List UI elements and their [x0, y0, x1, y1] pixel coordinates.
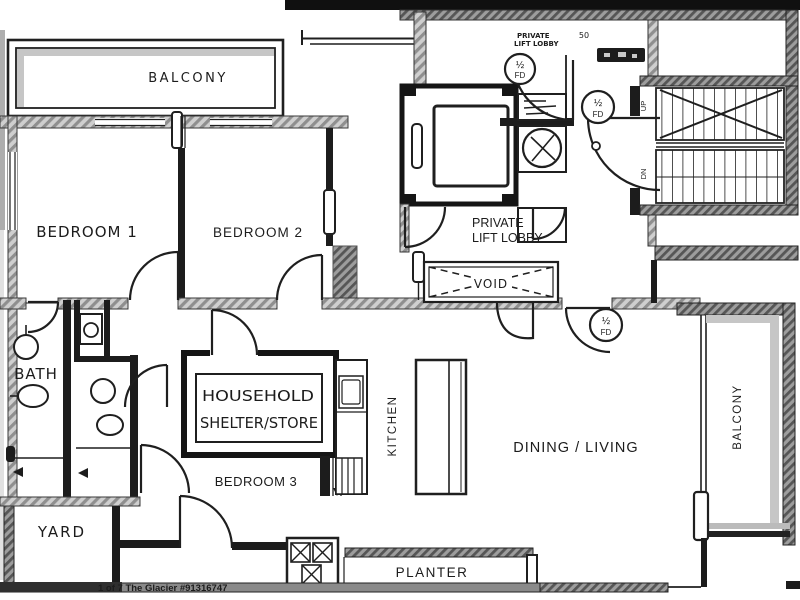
toilet-fixture	[97, 415, 123, 435]
room-label-bedroom-3: BEDROOM 3	[215, 474, 298, 489]
toilet-fixture	[18, 385, 48, 407]
room-label-planter: PLANTER	[396, 565, 469, 580]
fd-code: FD	[515, 71, 526, 80]
room-label-lift-lobby-line2: LIFT LOBBY	[472, 231, 543, 245]
floor-plan: ½ FD ½ FD ½ FD BALCONY BEDROOM 1 BEDROOM…	[0, 0, 800, 600]
room-label-yard: YARD	[37, 523, 86, 541]
room-label-balcony-top: BALCONY	[148, 71, 228, 86]
door-lobby-bottom-left	[405, 207, 445, 247]
lift-car	[434, 106, 508, 186]
room-label-bath: BATH	[14, 365, 58, 383]
room-label-bedroom-2: BEDROOM 2	[213, 225, 303, 240]
kitchen-counters	[336, 360, 466, 494]
door-bedroom3	[180, 496, 232, 548]
stairs-up-label: UP	[639, 101, 648, 111]
dimension-50: 50	[579, 31, 589, 40]
door-knob	[592, 142, 600, 150]
window-mullion	[324, 190, 335, 234]
floor-trap	[78, 468, 88, 478]
label-void: VOID	[474, 277, 508, 291]
fd-code: FD	[593, 110, 604, 119]
basin-fixture	[14, 335, 38, 359]
stairs-down-label: DN	[639, 169, 648, 180]
lobby-caption-line2: LIFT LOBBY	[514, 40, 560, 48]
room-label-lift-lobby-line1: PRIVATE	[472, 216, 524, 230]
door-bedroom2	[277, 255, 322, 300]
lobby-caption-line1: PRIVATE	[517, 32, 550, 40]
fire-door-symbol: ½ FD	[590, 309, 622, 341]
fd-code: FD	[601, 328, 612, 337]
fire-door-symbol: ½ FD	[582, 91, 614, 123]
door-bath	[28, 302, 58, 332]
planter-ledge	[287, 538, 537, 588]
door-shelter	[212, 310, 257, 355]
watermark-text: 1 of 7 The Glacier #91316747	[98, 583, 227, 594]
sink-fixture	[342, 380, 360, 404]
lift-counterweight	[412, 124, 422, 168]
top-black-bar	[285, 0, 800, 10]
fire-door-symbol: ½ FD	[505, 54, 535, 84]
balcony-top	[8, 40, 283, 116]
staircase	[656, 88, 784, 203]
room-label-dining-living: DINING / LIVING	[513, 440, 638, 456]
basin-fixture	[91, 379, 115, 403]
room-label-kitchen: KITCHEN	[387, 396, 399, 457]
room-label-balcony-right: BALCONY	[732, 384, 744, 449]
floor-plan-drawing: ½ FD ½ FD ½ FD BALCONY BEDROOM 1 BEDROOM…	[0, 0, 800, 600]
basin-fixture	[84, 323, 98, 337]
bedroom3-walls	[112, 506, 288, 584]
door-bedroom1	[130, 252, 178, 300]
sliding-door	[694, 492, 708, 540]
window-wall-top	[0, 112, 348, 148]
kitchen-island	[416, 360, 466, 494]
fd-fraction: ½	[516, 60, 525, 71]
room-label-shelter-line1: HOUSEHOLD	[202, 387, 314, 405]
room-label-bedroom-1: BEDROOM 1	[36, 223, 138, 241]
illegible-stamp	[597, 48, 645, 62]
fd-fraction: ½	[594, 98, 603, 109]
door-stair-hall	[588, 118, 660, 190]
bath-block	[0, 300, 140, 506]
fd-fraction: ½	[602, 316, 611, 327]
room-label-shelter-line2: SHELTER/STORE	[200, 414, 318, 432]
bedroom-walls	[178, 116, 357, 304]
